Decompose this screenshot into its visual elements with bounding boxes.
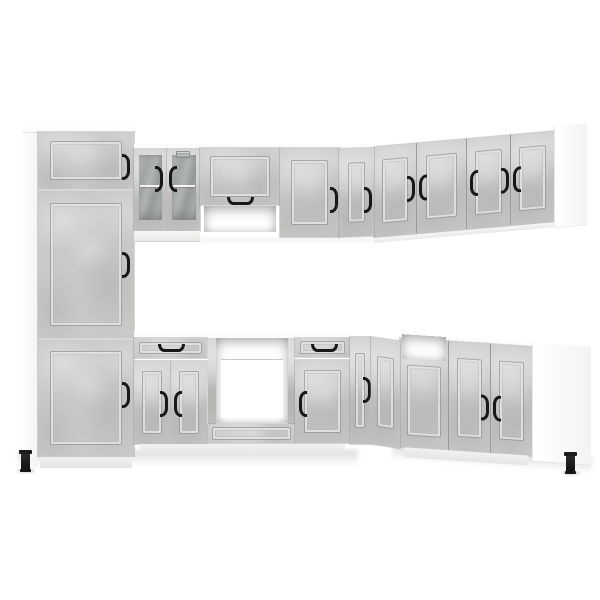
door-handle bbox=[122, 154, 130, 180]
door-handle bbox=[470, 170, 478, 197]
door-handle bbox=[174, 391, 182, 417]
product-photo-kitchen-set bbox=[0, 0, 600, 600]
cabinet-foot-right bbox=[566, 453, 575, 473]
door-handle bbox=[481, 394, 489, 421]
door-handle bbox=[122, 382, 130, 408]
door-handle bbox=[155, 166, 163, 192]
vent-grille bbox=[176, 151, 190, 158]
door-handle bbox=[363, 377, 371, 403]
glass-cabinet-underside bbox=[134, 231, 200, 242]
oven-cabinet-frame-right bbox=[288, 338, 295, 424]
oven-bay-back-panel bbox=[221, 359, 283, 418]
tall-cabinet-door-middle bbox=[38, 191, 134, 338]
base-corner-door bbox=[371, 337, 400, 448]
door-handle bbox=[330, 187, 338, 213]
tall-cabinet-door-bottom bbox=[38, 340, 134, 456]
wall-run-right bbox=[374, 128, 586, 243]
drawer-handle bbox=[311, 344, 338, 352]
door-handle bbox=[513, 166, 521, 193]
oven-cabinet-bottom-drawer bbox=[208, 424, 295, 443]
wall-run-right-end-panel bbox=[554, 123, 587, 228]
base-right-end-panel bbox=[532, 343, 591, 466]
door-handle bbox=[299, 391, 307, 417]
tall-cabinet-door-top bbox=[38, 132, 134, 189]
door-handle bbox=[160, 391, 168, 417]
open-niche bbox=[204, 206, 276, 232]
drawer-handle bbox=[158, 344, 185, 352]
tall-cabinet-side-panel bbox=[22, 126, 38, 468]
oven-bay bbox=[216, 338, 288, 423]
door-handle bbox=[501, 167, 509, 194]
door-handle bbox=[364, 187, 372, 213]
door-handle bbox=[419, 174, 427, 201]
cabinet-foot-left bbox=[21, 451, 30, 471]
door-handle bbox=[407, 175, 415, 202]
base-run-kick bbox=[140, 444, 345, 455]
door-handle bbox=[122, 252, 130, 278]
sink-open-top bbox=[402, 334, 446, 361]
tall-cabinet-plinth bbox=[40, 457, 132, 468]
door-handle bbox=[169, 166, 177, 192]
flip-door-handle bbox=[227, 197, 254, 205]
oven-cabinet-frame-left bbox=[208, 338, 216, 424]
wall-run-under-shadow bbox=[200, 238, 374, 244]
door-handle bbox=[493, 395, 501, 422]
